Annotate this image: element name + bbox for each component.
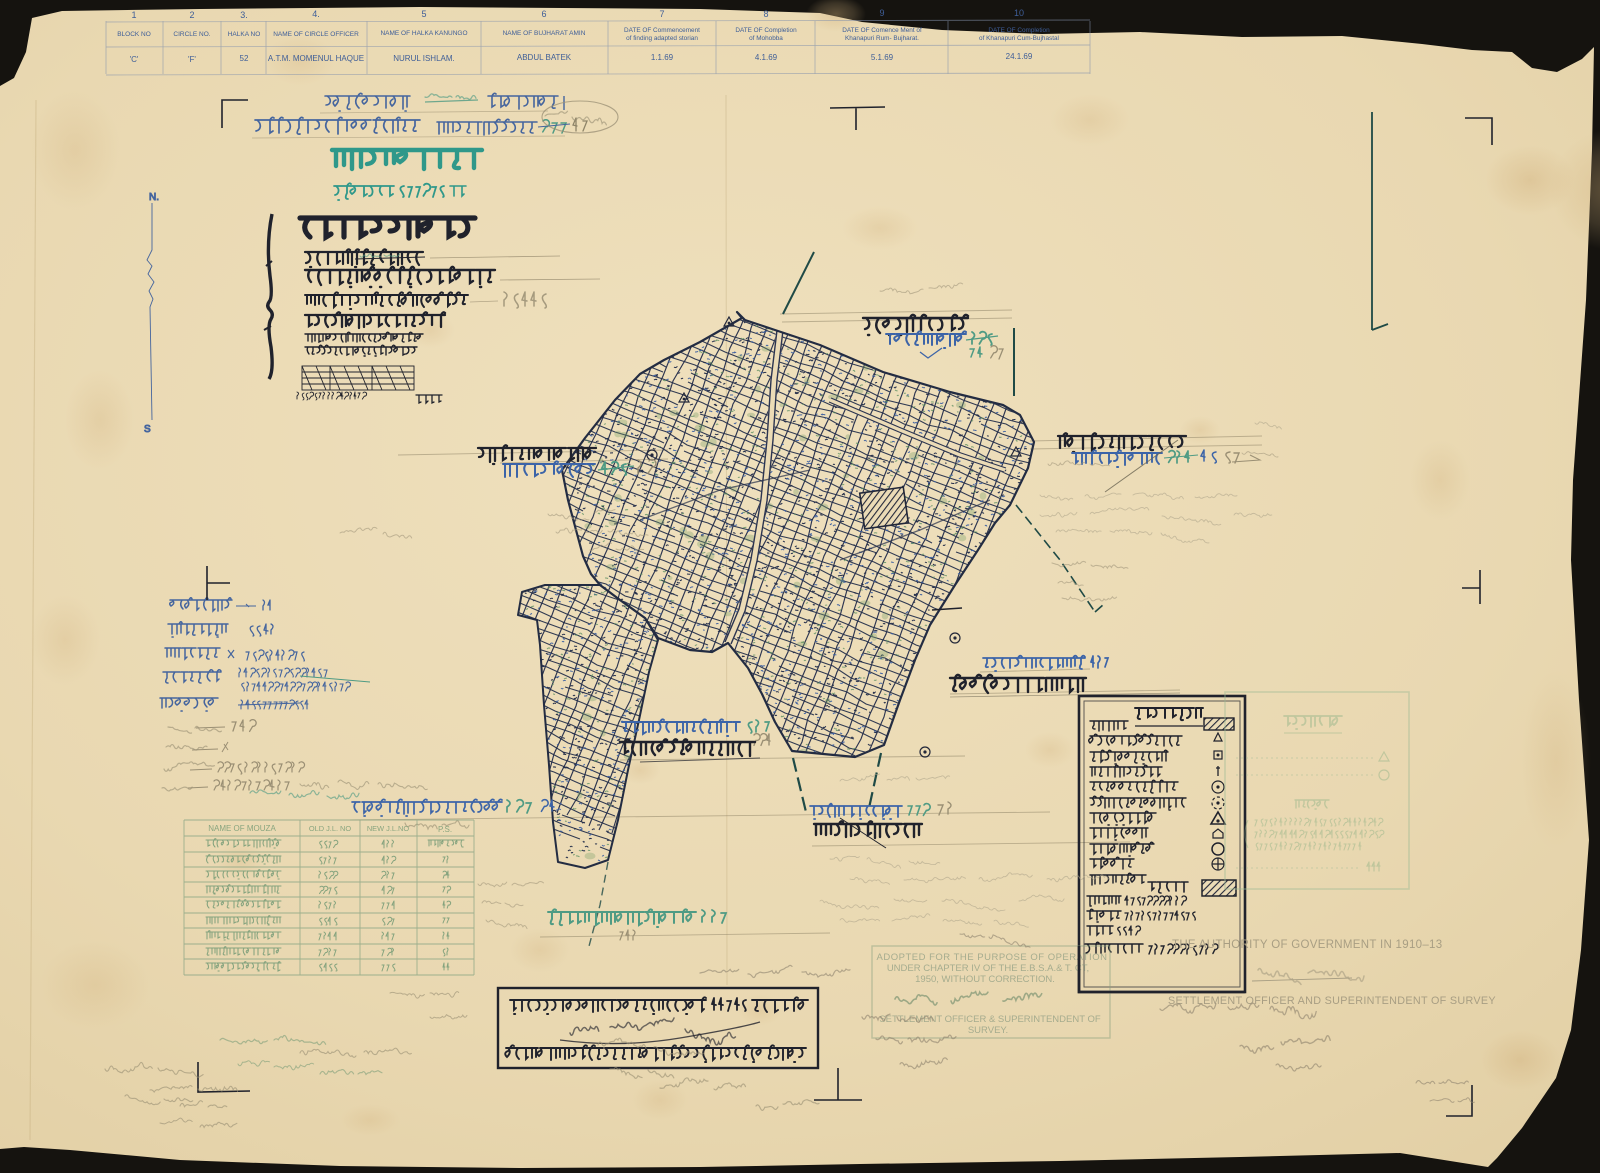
svg-text:24.1.69: 24.1.69 [1006,52,1033,61]
svg-text:1950, WITHOUT CORRECTION.: 1950, WITHOUT CORRECTION. [915,974,1055,985]
svg-text:OLD J.L. NO: OLD J.L. NO [309,824,352,833]
svg-text:'F': 'F' [188,55,196,64]
svg-text:4.: 4. [312,9,320,19]
svg-text:'C': 'C' [130,55,139,64]
svg-text:P.S.: P.S. [438,825,452,834]
svg-text:3.: 3. [240,10,248,20]
svg-text:7: 7 [659,9,664,19]
svg-text:NAME OF HALKA KANUNGO: NAME OF HALKA KANUNGO [380,30,467,37]
svg-text:S: S [144,424,151,435]
svg-text:UNDER CHAPTER IV OF THE E.B.S.: UNDER CHAPTER IV OF THE E.B.S.A.& T. CT, [887,963,1089,974]
svg-text:NAME OF CIRCLE OFFICER: NAME OF CIRCLE OFFICER [273,31,359,38]
svg-text:DATE OF Commencement: DATE OF Commencement [624,27,700,34]
svg-text:NURUL ISHLAM.: NURUL ISHLAM. [393,54,455,63]
svg-text:4.1.69: 4.1.69 [755,53,778,62]
svg-text:2: 2 [189,10,194,20]
svg-text:N.: N. [149,192,159,203]
svg-text:NAME OF MOUZA: NAME OF MOUZA [208,824,276,833]
svg-text:DATE OF Comence Ment of: DATE OF Comence Ment of [842,27,922,34]
svg-text:A.T.M. MOMENUL HAQUE: A.T.M. MOMENUL HAQUE [268,54,364,63]
svg-text:6: 6 [541,9,546,19]
svg-text:ABDUL BATEK: ABDUL BATEK [517,53,572,62]
svg-text:Khanapuri Rum- Bujharat.: Khanapuri Rum- Bujharat. [845,35,919,42]
svg-text:8: 8 [763,9,768,19]
svg-text:ADOPTED FOR THE PURPOSE OF OPE: ADOPTED FOR THE PURPOSE OF OPERATION [877,952,1108,963]
svg-text:SETTLEMENT OFFICER & SUPERINTE: SETTLEMENT OFFICER & SUPERINTENDENT OF [879,1014,1101,1025]
svg-text:of finding adapted storian: of finding adapted storian [626,35,698,42]
svg-text:THE AUTHORITY OF GOVERNMENT IN: THE AUTHORITY OF GOVERNMENT IN 1910–13 [1172,939,1442,951]
svg-text:CIRCLE NO.: CIRCLE NO. [173,31,210,38]
svg-text:of Mohobba: of Mohobba [749,35,783,42]
svg-text:5.1.69: 5.1.69 [871,53,894,62]
svg-text:NEW J.L.NO: NEW J.L.NO [367,824,410,833]
svg-text:1: 1 [131,10,136,20]
svg-text:HALKA NO: HALKA NO [228,31,261,38]
svg-text:SURVEY.: SURVEY. [968,1025,1008,1036]
svg-text:DATE OF Completion: DATE OF Completion [735,27,797,34]
svg-text:1.1.69: 1.1.69 [651,53,674,62]
svg-text:52: 52 [240,54,249,63]
svg-text:9: 9 [879,8,884,18]
svg-text:SETTLEMENT OFFICER AND SUPERIN: SETTLEMENT OFFICER AND SUPERINTENDENT OF… [1168,995,1496,1007]
svg-text:10: 10 [1014,8,1024,18]
svg-text:BLOCK NO: BLOCK NO [117,31,151,38]
svg-text:of Khanapuri Cum-Bujhastal: of Khanapuri Cum-Bujhastal [979,35,1059,42]
svg-text:NAME OF BUJHARAT AMIN: NAME OF BUJHARAT AMIN [503,30,586,37]
svg-text:DATE OF Completion: DATE OF Completion [988,27,1050,34]
svg-text:5: 5 [421,9,426,19]
